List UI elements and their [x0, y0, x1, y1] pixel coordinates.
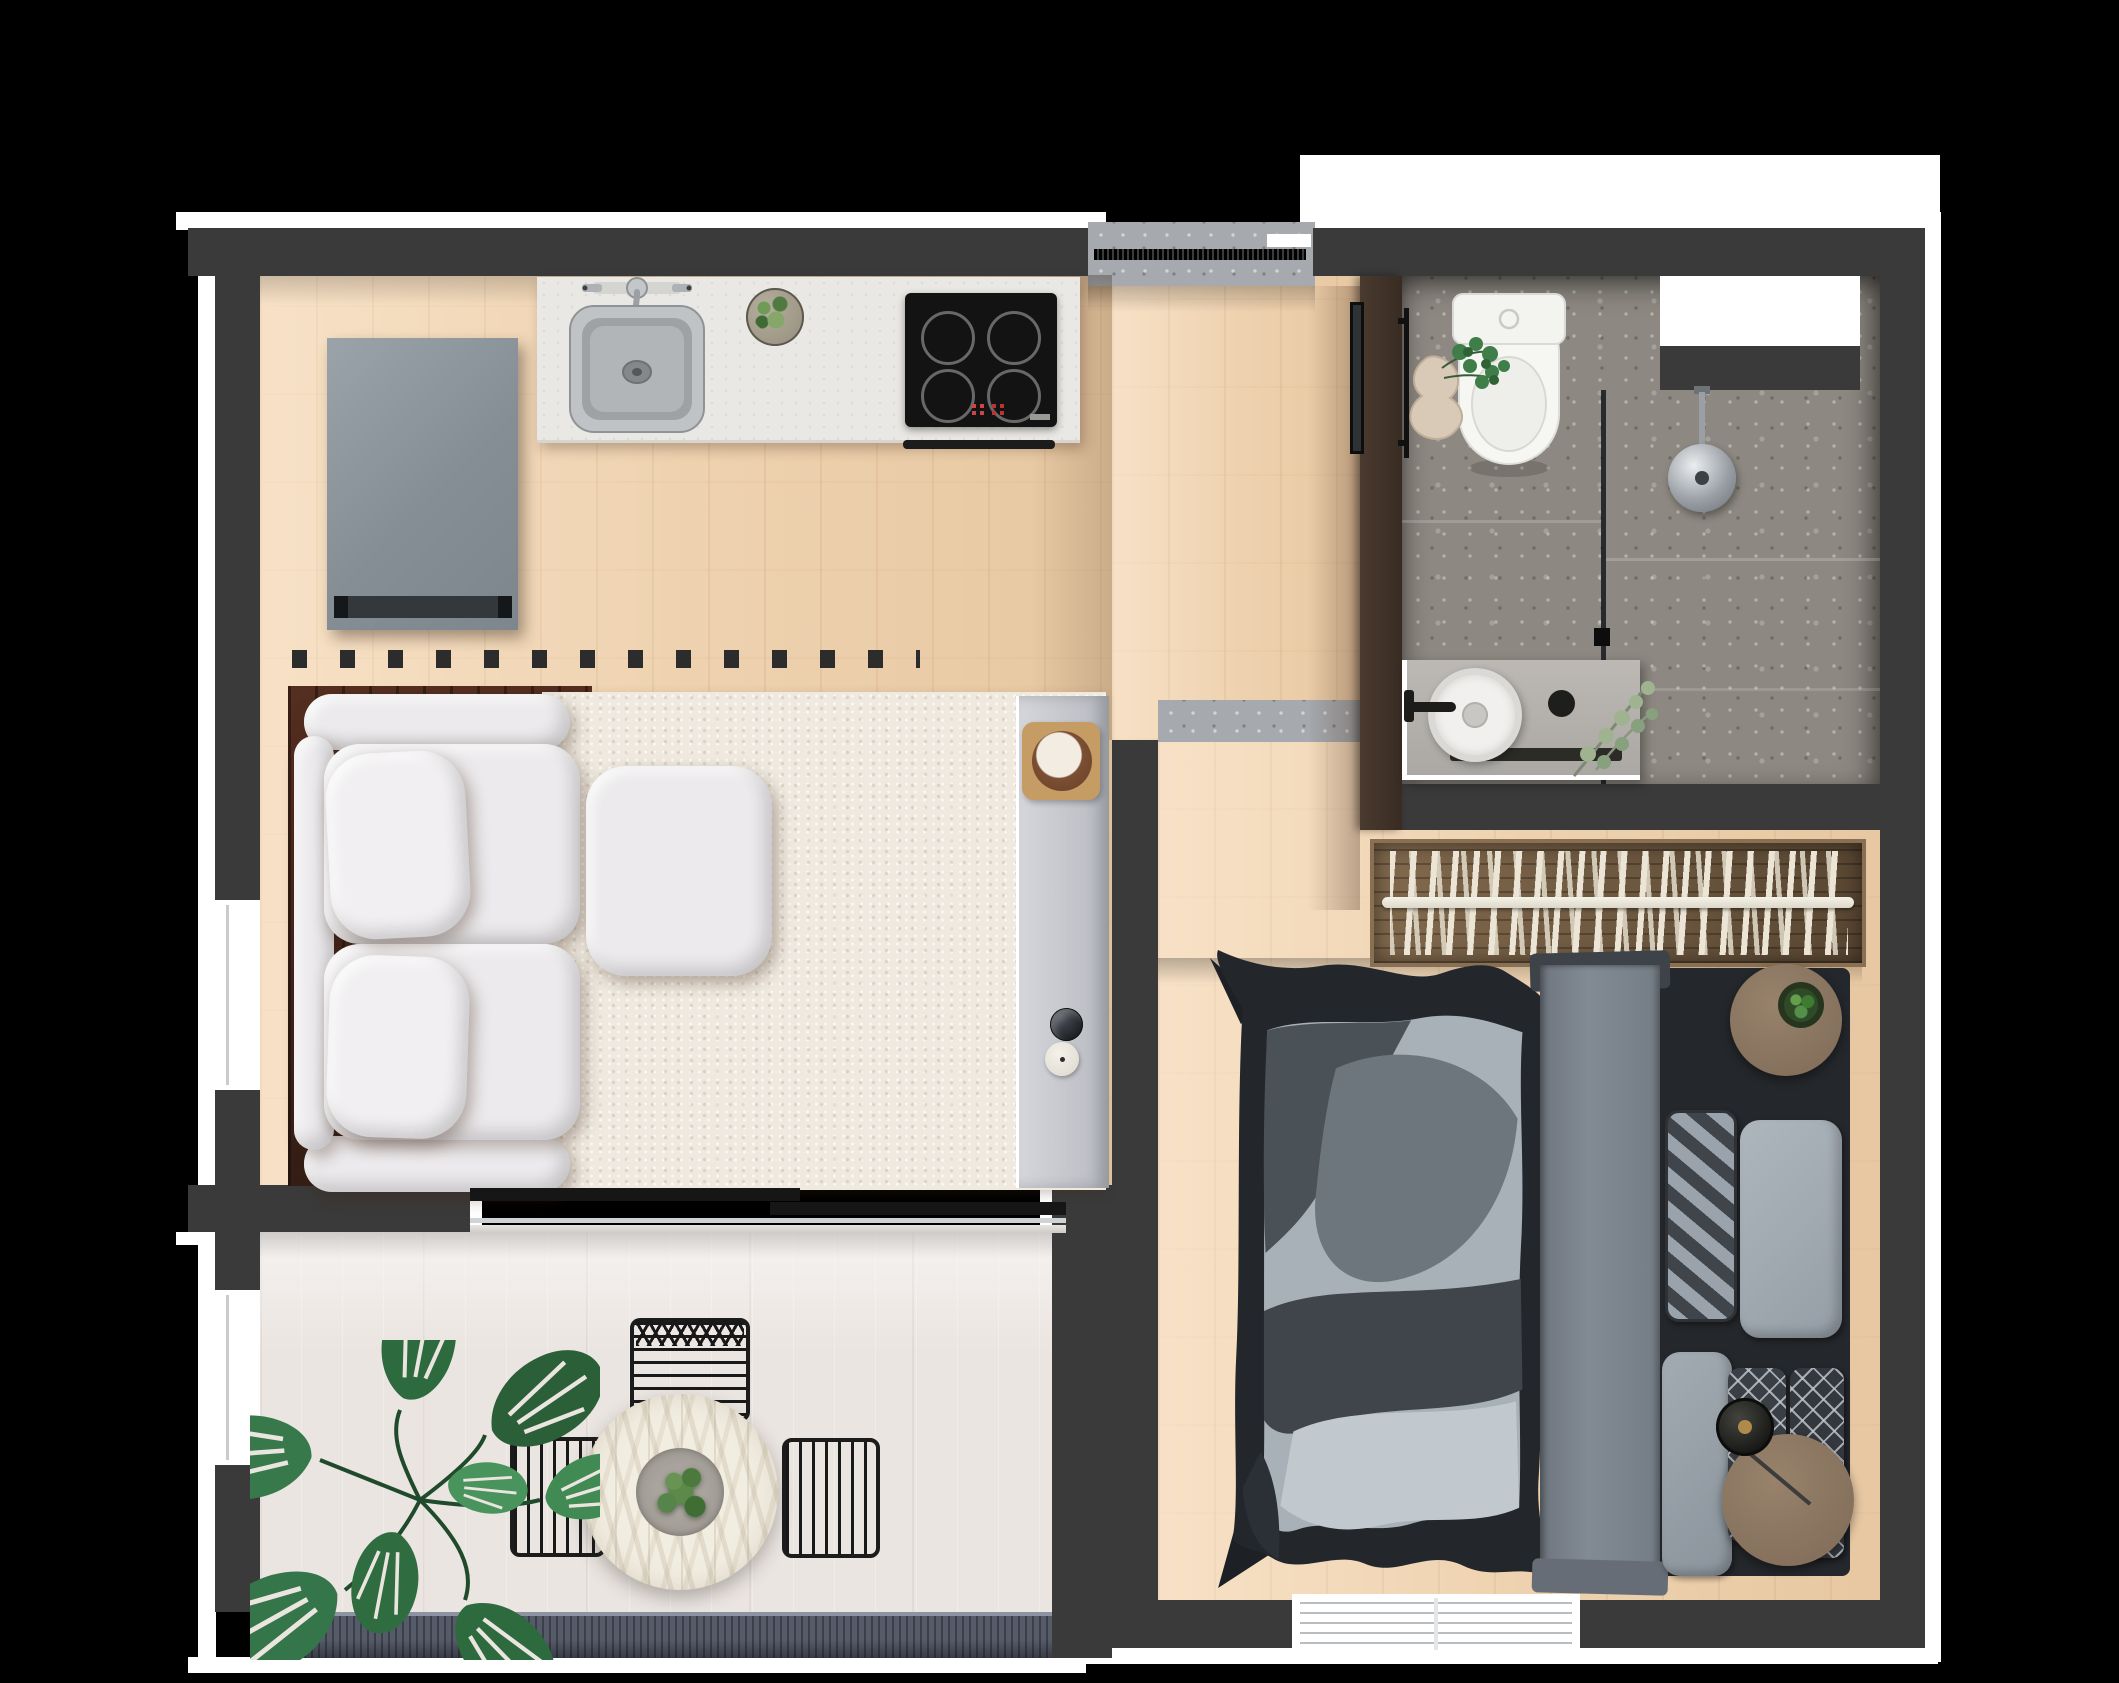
fridge	[327, 338, 518, 630]
shower-arm	[1699, 392, 1705, 450]
cooktop-label	[1030, 414, 1050, 420]
shower-niche-wall	[1660, 346, 1860, 390]
sofa-back-cushion-1	[323, 748, 473, 941]
ottoman	[586, 766, 772, 976]
wall-balcony-left-a	[215, 1232, 260, 1290]
sofa-armrest-top	[304, 694, 570, 750]
wall-living-bottom-a	[188, 1185, 470, 1232]
nightstand-top-plant	[1784, 988, 1818, 1022]
towel-rail	[1404, 308, 1409, 458]
wall-bedroom-bottom-a	[1097, 1600, 1292, 1648]
shower-head-center	[1695, 471, 1709, 485]
wall-living-bedroom	[1112, 740, 1158, 1648]
bed-duvet	[1205, 938, 1565, 1590]
balcony-door-panel-1	[470, 1188, 800, 1201]
hall-cabinet	[1360, 276, 1402, 830]
towel-rail-bracket-2	[1398, 440, 1408, 446]
window-bedroom-divider	[1434, 1598, 1438, 1650]
bed-runner	[1540, 965, 1660, 1580]
oven-handle	[903, 440, 1055, 449]
kitchen-sink	[552, 276, 722, 444]
burner-1	[921, 311, 975, 365]
outline-right	[1925, 212, 1941, 1662]
wall-top-kitchen	[188, 228, 1088, 276]
window-living-west-line	[226, 905, 229, 1085]
floor-plan	[0, 0, 2119, 1683]
eucalyptus-sprig	[1566, 670, 1670, 782]
window-balcony-west-line	[226, 1295, 229, 1460]
vessel-sink-drain	[1462, 702, 1488, 728]
pillow-gray-bottom	[1662, 1352, 1732, 1576]
monstera-plant	[250, 1340, 600, 1660]
balcony-door-track	[470, 1218, 1066, 1223]
sphere-vase	[1050, 1008, 1083, 1041]
pillow-patterned	[1665, 1110, 1737, 1322]
ivy-vase	[1398, 322, 1510, 444]
sofa-armrest-bottom	[304, 1136, 570, 1192]
pillow-gray-top	[1740, 1120, 1842, 1338]
dining-chair-top-backrest	[636, 1320, 744, 1346]
candle-wick	[1060, 1057, 1065, 1062]
window-living-west	[202, 900, 260, 1090]
counter-plant-leaves	[752, 292, 792, 332]
wardrobe-rail	[1382, 897, 1854, 908]
entry-door-frame-piece	[1267, 234, 1311, 247]
fridge-handle	[334, 596, 512, 618]
sofa-back-cushion-2	[325, 954, 471, 1141]
wall-left-lower	[215, 1090, 260, 1190]
wall-left-upper	[215, 252, 260, 900]
wall-right	[1880, 228, 1925, 1648]
shower-mixer-knob	[1594, 628, 1610, 646]
shower-niche	[1660, 276, 1860, 346]
balcony-door-sill	[470, 1225, 1066, 1233]
shadow-balcony-top	[260, 1232, 1052, 1258]
leaning-mirror	[1350, 302, 1364, 454]
shadow-entry	[1088, 286, 1315, 312]
towel-rail-bracket-1	[1398, 318, 1408, 324]
cooktop-indicator-dots	[972, 404, 976, 408]
bed-runner-bottom-flap	[1532, 1558, 1669, 1596]
tray-bowl	[1032, 731, 1092, 791]
dining-chair-right	[782, 1438, 880, 1558]
wall-bathroom-bottom	[1360, 784, 1910, 830]
burner-3	[921, 369, 975, 423]
wall-top-bathroom	[1313, 228, 1925, 276]
wall-balcony-right	[1052, 1232, 1112, 1658]
balcony-door-panel-2	[770, 1202, 1066, 1215]
floor-vent-strip	[292, 650, 920, 668]
bathroom-tile-seam-1	[1402, 520, 1602, 523]
vanity-faucet-base	[1404, 690, 1414, 722]
table-centerpiece-plant	[646, 1456, 716, 1528]
bathroom-tile-seam-2	[1606, 558, 1880, 561]
fan-hub	[1738, 1420, 1752, 1434]
burner-2	[987, 311, 1041, 365]
wall-bedroom-bottom-b	[1580, 1600, 1925, 1648]
entry-door-track	[1094, 249, 1306, 260]
outline-top-right-band	[1300, 155, 1940, 230]
